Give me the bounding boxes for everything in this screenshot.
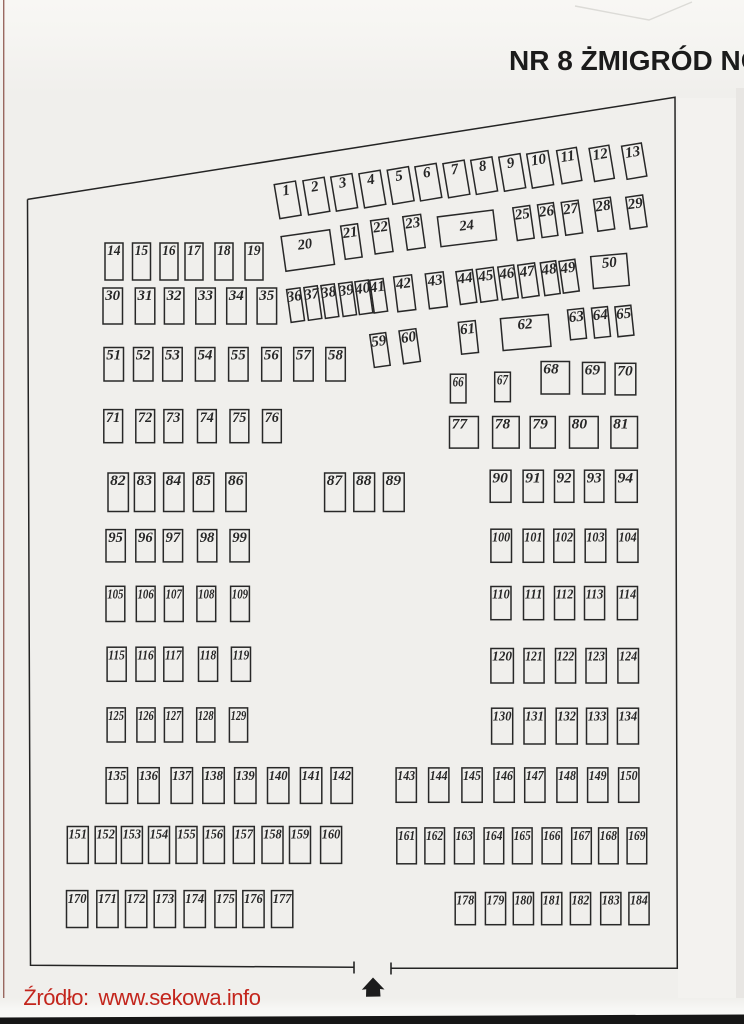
svg-text:38: 38 bbox=[319, 284, 338, 302]
svg-text:172: 172 bbox=[127, 891, 146, 906]
svg-text:55: 55 bbox=[231, 348, 246, 364]
svg-text:132: 132 bbox=[557, 708, 576, 723]
svg-text:62: 62 bbox=[517, 316, 534, 333]
svg-text:89: 89 bbox=[386, 473, 402, 489]
svg-text:26: 26 bbox=[537, 203, 556, 221]
svg-text:135: 135 bbox=[107, 768, 126, 783]
svg-text:173: 173 bbox=[155, 891, 174, 906]
svg-text:27: 27 bbox=[561, 200, 580, 218]
svg-text:NR 8 ŻMIGRÓD NO: NR 8 ŻMIGRÓD NO bbox=[509, 45, 744, 76]
svg-text:151: 151 bbox=[69, 827, 88, 842]
svg-text:107: 107 bbox=[166, 587, 183, 602]
svg-text:146: 146 bbox=[495, 768, 513, 783]
svg-text:21: 21 bbox=[341, 224, 359, 242]
svg-text:83: 83 bbox=[137, 473, 153, 489]
svg-text:10: 10 bbox=[530, 151, 548, 169]
svg-text:47: 47 bbox=[518, 263, 537, 281]
svg-text:Źródło:: Źródło: bbox=[23, 985, 88, 1010]
svg-text:39: 39 bbox=[337, 282, 356, 300]
svg-text:19: 19 bbox=[247, 243, 261, 259]
svg-text:57: 57 bbox=[296, 348, 311, 364]
svg-text:79: 79 bbox=[532, 417, 548, 433]
svg-text:35: 35 bbox=[258, 288, 274, 304]
svg-text:48: 48 bbox=[540, 261, 559, 279]
svg-text:149: 149 bbox=[589, 768, 607, 783]
svg-text:51: 51 bbox=[106, 348, 121, 364]
svg-text:43: 43 bbox=[426, 272, 444, 290]
svg-text:86: 86 bbox=[228, 473, 244, 489]
svg-text:104: 104 bbox=[619, 529, 637, 544]
svg-text:70: 70 bbox=[617, 364, 633, 380]
svg-text:80: 80 bbox=[572, 417, 588, 433]
svg-text:184: 184 bbox=[630, 893, 648, 908]
svg-text:167: 167 bbox=[573, 828, 591, 843]
svg-text:16: 16 bbox=[162, 243, 176, 259]
svg-text:125: 125 bbox=[108, 708, 124, 723]
svg-text:50: 50 bbox=[601, 255, 618, 272]
svg-text:144: 144 bbox=[430, 768, 448, 783]
svg-text:64: 64 bbox=[592, 307, 609, 325]
svg-text:177: 177 bbox=[273, 891, 293, 906]
svg-text:140: 140 bbox=[269, 768, 288, 783]
svg-text:28: 28 bbox=[593, 197, 612, 215]
svg-text:49: 49 bbox=[558, 259, 577, 277]
svg-text:153: 153 bbox=[123, 827, 142, 842]
svg-text:44: 44 bbox=[456, 270, 475, 288]
svg-text:137: 137 bbox=[172, 768, 192, 783]
svg-text:165: 165 bbox=[514, 828, 531, 843]
svg-text:155: 155 bbox=[177, 827, 196, 842]
svg-text:150: 150 bbox=[620, 768, 638, 783]
svg-text:www.sekowa.info: www.sekowa.info bbox=[98, 985, 261, 1010]
svg-text:31: 31 bbox=[137, 288, 153, 304]
svg-text:170: 170 bbox=[68, 891, 87, 906]
svg-text:23: 23 bbox=[403, 215, 422, 233]
svg-text:56: 56 bbox=[264, 348, 279, 364]
svg-text:74: 74 bbox=[200, 410, 215, 426]
svg-text:179: 179 bbox=[487, 893, 505, 908]
svg-text:94: 94 bbox=[618, 470, 634, 486]
svg-text:161: 161 bbox=[398, 828, 415, 843]
svg-text:175: 175 bbox=[216, 891, 235, 906]
svg-text:24: 24 bbox=[458, 217, 475, 235]
svg-text:12: 12 bbox=[592, 146, 610, 164]
svg-text:163: 163 bbox=[456, 828, 473, 843]
svg-text:103: 103 bbox=[586, 529, 604, 544]
svg-text:115: 115 bbox=[108, 647, 125, 662]
svg-text:67: 67 bbox=[497, 372, 508, 388]
svg-text:121: 121 bbox=[525, 649, 543, 664]
svg-text:106: 106 bbox=[138, 587, 155, 602]
svg-text:148: 148 bbox=[558, 768, 576, 783]
svg-text:160: 160 bbox=[322, 827, 341, 842]
svg-text:14: 14 bbox=[107, 243, 121, 259]
svg-text:152: 152 bbox=[96, 827, 115, 842]
svg-text:77: 77 bbox=[452, 417, 468, 433]
svg-text:159: 159 bbox=[291, 827, 310, 842]
svg-text:126: 126 bbox=[138, 708, 154, 723]
svg-text:75: 75 bbox=[232, 410, 247, 426]
svg-text:118: 118 bbox=[200, 647, 217, 662]
svg-text:129: 129 bbox=[231, 708, 247, 723]
svg-text:181: 181 bbox=[543, 893, 561, 908]
svg-text:29: 29 bbox=[626, 195, 645, 213]
svg-text:87: 87 bbox=[327, 473, 343, 489]
svg-text:45: 45 bbox=[476, 267, 495, 285]
svg-text:158: 158 bbox=[263, 827, 282, 842]
svg-text:36: 36 bbox=[285, 288, 304, 306]
svg-text:100: 100 bbox=[492, 529, 510, 544]
svg-text:72: 72 bbox=[138, 410, 153, 426]
svg-text:122: 122 bbox=[557, 649, 575, 664]
svg-text:13: 13 bbox=[624, 144, 642, 162]
svg-text:178: 178 bbox=[456, 893, 474, 908]
svg-text:33: 33 bbox=[197, 288, 213, 304]
svg-text:142: 142 bbox=[332, 768, 351, 783]
svg-text:130: 130 bbox=[493, 708, 512, 723]
svg-text:174: 174 bbox=[185, 891, 204, 906]
svg-text:76: 76 bbox=[265, 410, 280, 426]
svg-text:117: 117 bbox=[165, 647, 183, 662]
svg-text:133: 133 bbox=[588, 708, 607, 723]
svg-text:127: 127 bbox=[166, 708, 183, 723]
svg-text:81: 81 bbox=[613, 417, 629, 433]
svg-text:131: 131 bbox=[525, 708, 544, 723]
svg-text:145: 145 bbox=[463, 768, 481, 783]
svg-text:32: 32 bbox=[166, 288, 182, 304]
svg-text:171: 171 bbox=[98, 891, 117, 906]
svg-text:88: 88 bbox=[356, 473, 372, 489]
svg-text:102: 102 bbox=[555, 529, 573, 544]
svg-text:61: 61 bbox=[459, 321, 476, 338]
svg-text:105: 105 bbox=[107, 587, 124, 602]
svg-text:17: 17 bbox=[187, 243, 201, 259]
svg-text:176: 176 bbox=[244, 891, 263, 906]
svg-text:128: 128 bbox=[198, 708, 214, 723]
svg-text:124: 124 bbox=[619, 649, 637, 664]
svg-text:101: 101 bbox=[524, 529, 542, 544]
svg-text:180: 180 bbox=[515, 893, 533, 908]
svg-text:92: 92 bbox=[557, 470, 572, 486]
svg-text:84: 84 bbox=[166, 473, 182, 489]
svg-text:139: 139 bbox=[236, 768, 255, 783]
svg-text:65: 65 bbox=[615, 305, 632, 323]
svg-text:157: 157 bbox=[235, 827, 255, 842]
svg-text:123: 123 bbox=[587, 649, 605, 664]
svg-text:20: 20 bbox=[296, 236, 314, 254]
svg-text:138: 138 bbox=[204, 768, 223, 783]
svg-text:97: 97 bbox=[166, 530, 181, 546]
svg-text:82: 82 bbox=[110, 473, 126, 489]
svg-text:166: 166 bbox=[543, 828, 560, 843]
svg-text:154: 154 bbox=[150, 827, 169, 842]
svg-text:95: 95 bbox=[108, 530, 123, 546]
svg-text:96: 96 bbox=[138, 530, 153, 546]
svg-text:136: 136 bbox=[139, 768, 158, 783]
svg-text:58: 58 bbox=[328, 348, 343, 364]
svg-text:78: 78 bbox=[495, 417, 511, 433]
svg-text:73: 73 bbox=[166, 410, 181, 426]
svg-text:66: 66 bbox=[453, 374, 464, 390]
svg-text:109: 109 bbox=[232, 587, 249, 602]
svg-text:11: 11 bbox=[559, 148, 576, 166]
svg-text:110: 110 bbox=[492, 587, 510, 602]
svg-text:71: 71 bbox=[106, 410, 120, 426]
svg-text:141: 141 bbox=[302, 768, 321, 783]
svg-text:18: 18 bbox=[217, 243, 231, 259]
svg-text:134: 134 bbox=[619, 708, 638, 723]
svg-text:68: 68 bbox=[543, 362, 559, 378]
svg-text:69: 69 bbox=[585, 363, 601, 379]
svg-text:22: 22 bbox=[371, 219, 390, 237]
svg-text:60: 60 bbox=[400, 329, 418, 347]
svg-text:52: 52 bbox=[136, 348, 151, 364]
svg-text:116: 116 bbox=[137, 647, 154, 662]
svg-text:111: 111 bbox=[525, 587, 543, 602]
svg-text:53: 53 bbox=[165, 348, 180, 364]
svg-text:98: 98 bbox=[200, 530, 215, 546]
svg-text:90: 90 bbox=[492, 470, 508, 486]
svg-text:147: 147 bbox=[526, 768, 545, 783]
svg-text:168: 168 bbox=[600, 828, 617, 843]
svg-text:59: 59 bbox=[370, 333, 388, 351]
svg-text:119: 119 bbox=[233, 647, 250, 662]
svg-text:143: 143 bbox=[397, 768, 415, 783]
svg-text:164: 164 bbox=[485, 828, 502, 843]
svg-text:46: 46 bbox=[497, 265, 516, 283]
svg-text:37: 37 bbox=[302, 286, 321, 304]
svg-text:183: 183 bbox=[602, 893, 620, 908]
svg-text:15: 15 bbox=[135, 243, 149, 259]
svg-text:182: 182 bbox=[572, 893, 590, 908]
svg-text:120: 120 bbox=[492, 649, 512, 664]
svg-text:25: 25 bbox=[513, 206, 532, 224]
svg-text:34: 34 bbox=[228, 288, 244, 304]
svg-text:162: 162 bbox=[426, 828, 443, 843]
svg-text:156: 156 bbox=[205, 827, 224, 842]
svg-text:91: 91 bbox=[525, 470, 541, 486]
svg-text:114: 114 bbox=[619, 587, 637, 602]
svg-text:85: 85 bbox=[196, 473, 212, 489]
svg-text:93: 93 bbox=[587, 470, 602, 486]
svg-text:30: 30 bbox=[104, 288, 120, 304]
svg-text:41: 41 bbox=[368, 279, 386, 297]
svg-text:42: 42 bbox=[394, 275, 412, 293]
svg-text:63: 63 bbox=[568, 309, 585, 327]
svg-text:112: 112 bbox=[556, 587, 574, 602]
svg-text:169: 169 bbox=[628, 828, 645, 843]
svg-text:108: 108 bbox=[198, 587, 215, 602]
svg-text:54: 54 bbox=[198, 348, 213, 364]
svg-text:99: 99 bbox=[232, 530, 247, 546]
svg-text:113: 113 bbox=[586, 587, 604, 602]
